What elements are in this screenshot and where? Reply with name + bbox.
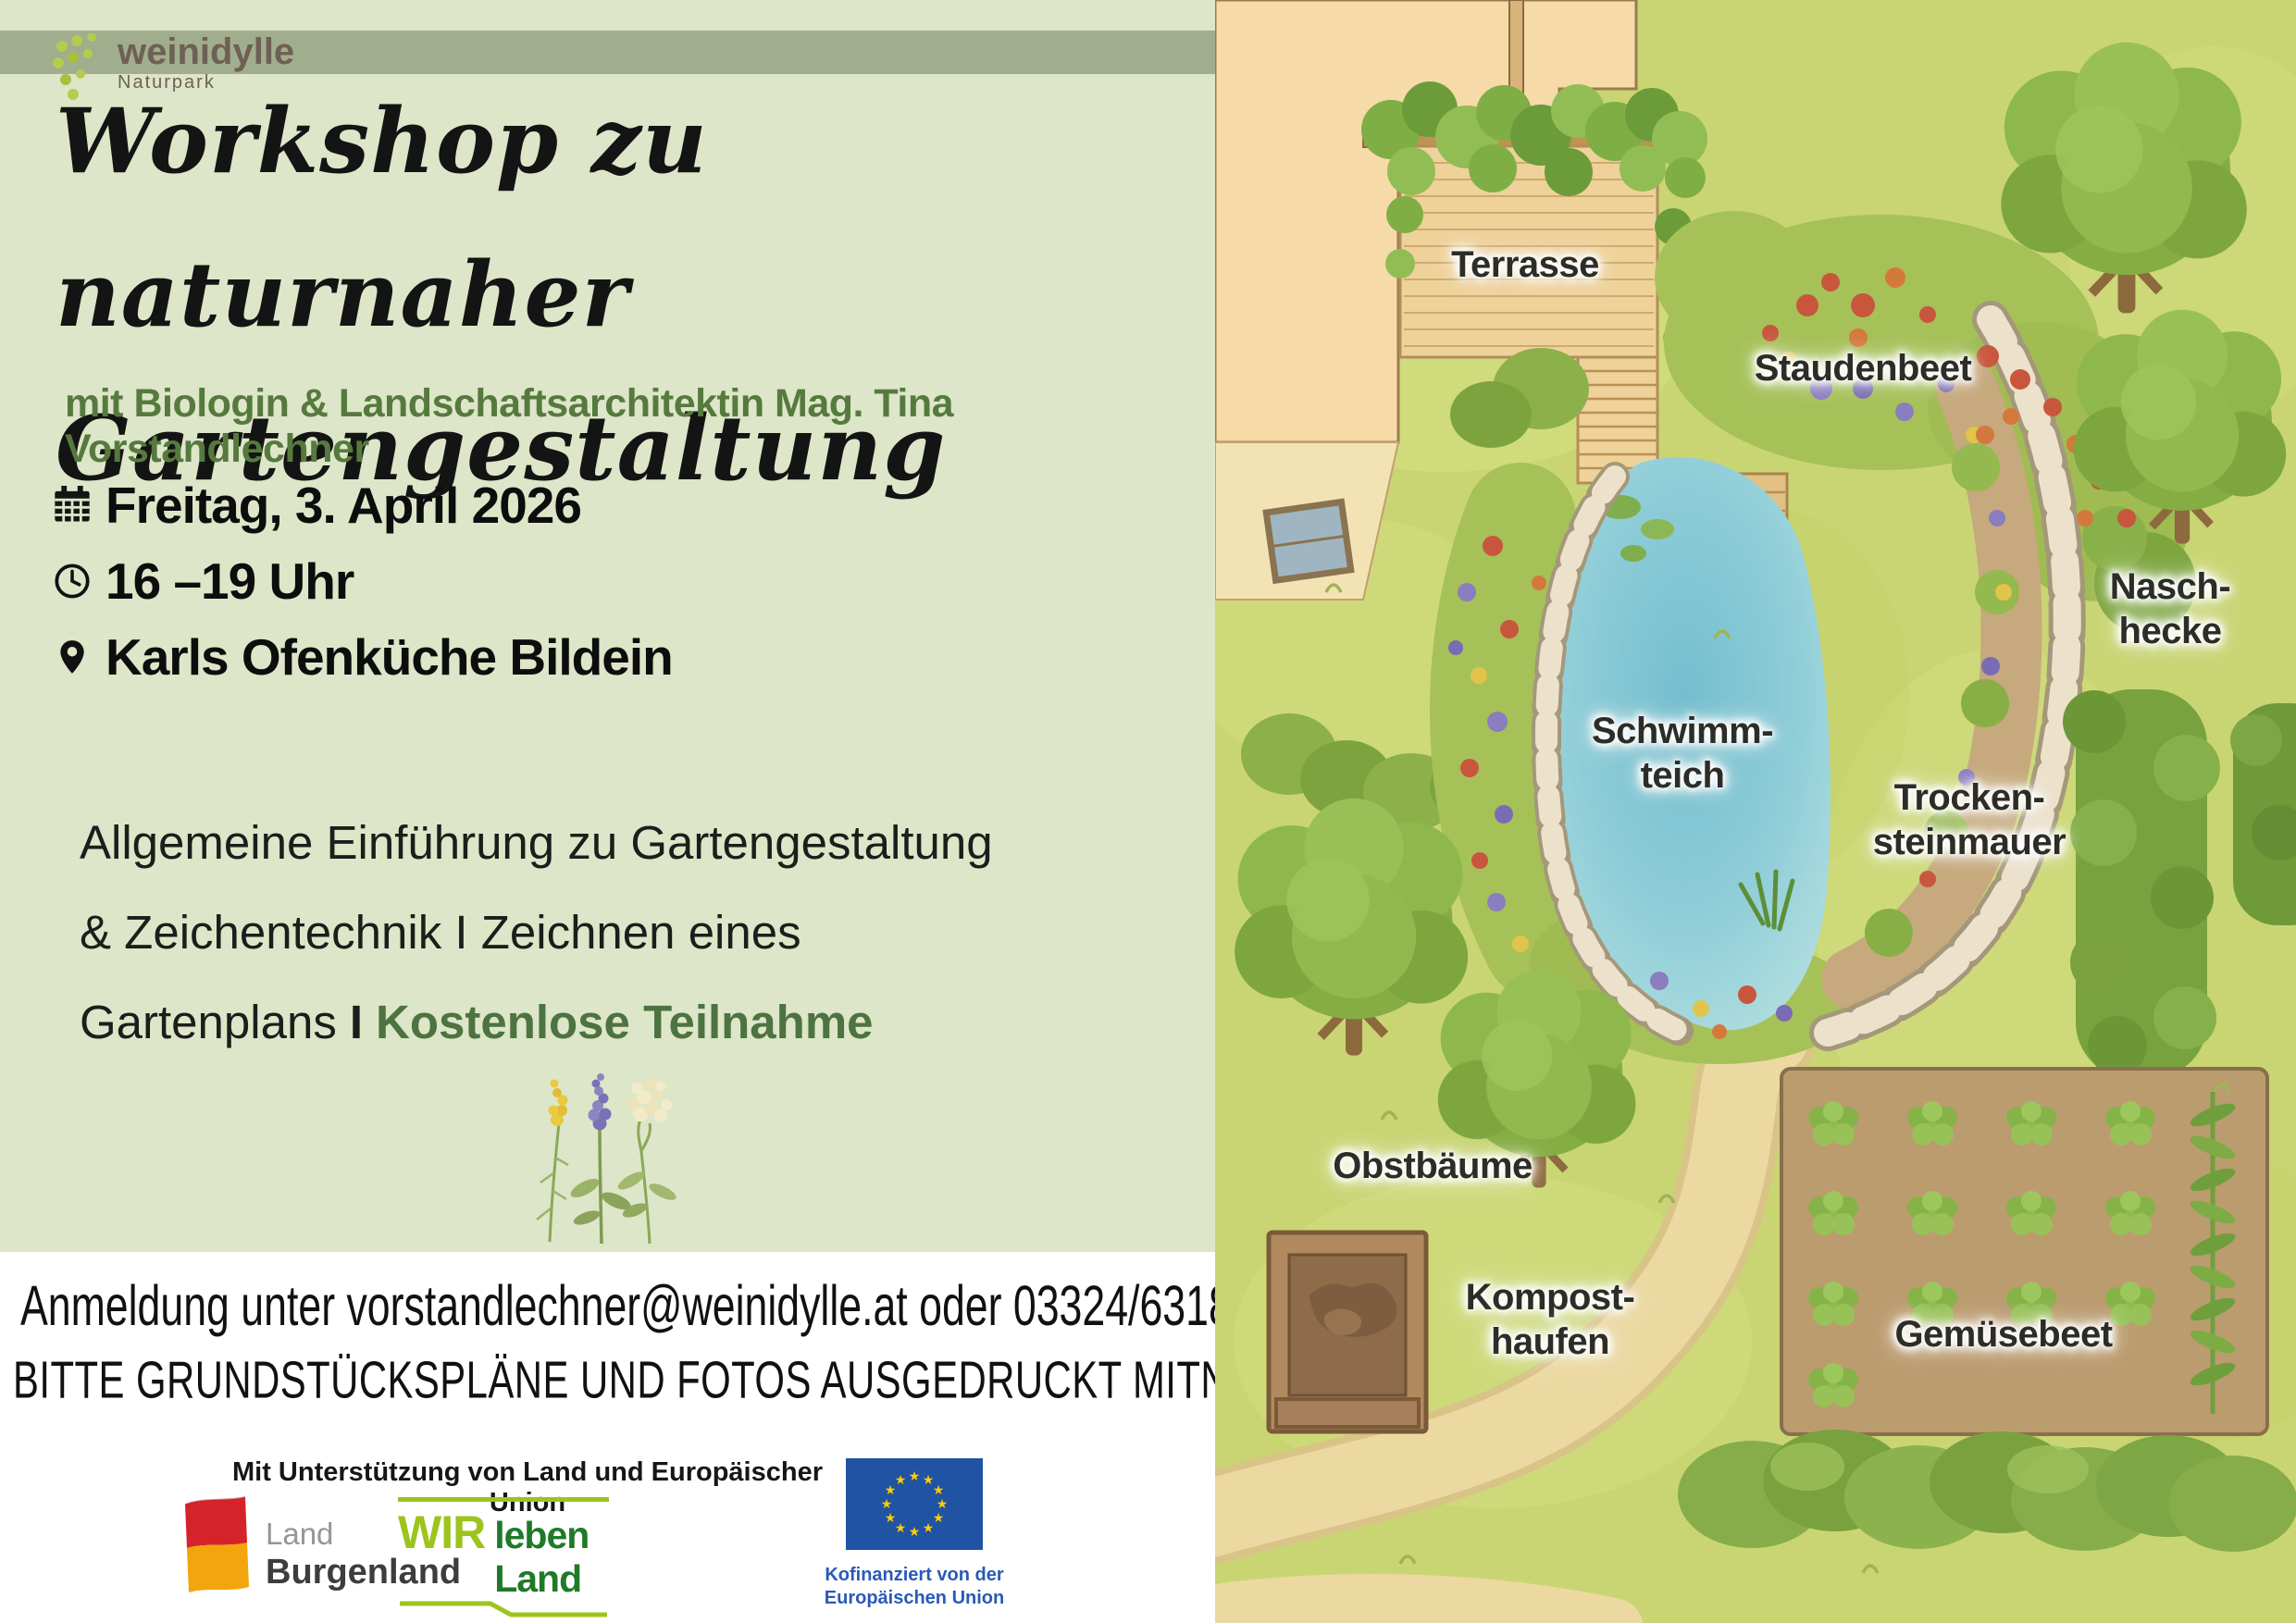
garden-illustration-canvas xyxy=(1215,0,2296,1623)
workshop-poster: weinidylle Naturpark Workshop zu naturna… xyxy=(0,0,2296,1623)
svg-text:★: ★ xyxy=(933,1483,945,1498)
wir-leben-land-logo: WIR leben Land Gemeinsame Agrarpolitik Ö… xyxy=(398,1497,620,1623)
svg-text:★: ★ xyxy=(895,1473,907,1488)
registration-line: Anmeldung unter vorstandlechner@weinidyl… xyxy=(20,1272,1232,1339)
wir-logo-rest-text: leben Land xyxy=(494,1514,620,1601)
footer-strip: Anmeldung unter vorstandlechner@weinidyl… xyxy=(0,1252,1215,1623)
description-line-3-prefix: Gartenplans xyxy=(80,996,337,1048)
svg-text:★: ★ xyxy=(909,1525,921,1540)
svg-text:★: ★ xyxy=(909,1469,921,1484)
label-staudenbeet: Staudenbeet xyxy=(1724,346,2002,390)
garden-plan-illustration: Terrasse Staudenbeet Nasch- hecke Schwim… xyxy=(1215,0,2296,1623)
label-terrasse: Terrasse xyxy=(1423,242,1627,287)
eu-logo-caption: Kofinanziert von der Europäischen Union xyxy=(822,1564,1007,1610)
wir-logo-top-line xyxy=(398,1497,609,1502)
svg-text:★: ★ xyxy=(885,1511,897,1526)
svg-text:★: ★ xyxy=(937,1497,949,1512)
detail-time: 16 –19 Uhr xyxy=(48,543,673,619)
label-komposthaufen: Kompost- haufen xyxy=(1439,1275,1661,1364)
detail-location: Karls Ofenküche Bildein xyxy=(48,619,673,695)
title-line-1: Workshop zu naturnaher xyxy=(56,65,1215,372)
separator-bar: I xyxy=(350,996,363,1048)
bring-plans-line: BITTE GRUNDSTÜCKSPLÄNE UND FOTOS AUSGEDR… xyxy=(13,1350,1383,1410)
description: Allgemeine Einführung zu Gartengestaltun… xyxy=(80,798,993,1067)
svg-text:★: ★ xyxy=(881,1497,893,1512)
subtitle: mit Biologin & Landschaftsarchitektin Ma… xyxy=(65,381,1212,472)
svg-text:★: ★ xyxy=(933,1511,945,1526)
description-line-3: GartenplansIKostenlose Teilnahme xyxy=(80,977,993,1067)
label-schwimmteich: Schwimm- teich xyxy=(1562,709,1803,798)
location-pin-icon xyxy=(48,638,96,675)
svg-text:★: ★ xyxy=(923,1521,935,1536)
label-obstbaeume: Obstbäume xyxy=(1312,1144,1553,1188)
clock-icon xyxy=(48,563,96,600)
label-trockensteinmauer: Trocken- steinmauer xyxy=(1821,775,2117,864)
free-participation-highlight: Kostenlose Teilnahme xyxy=(376,996,874,1048)
wir-logo-underline xyxy=(398,1601,609,1619)
detail-date-text: Freitag, 3. April 2026 xyxy=(105,476,581,535)
description-line-2: & Zeichentechnik I Zeichnen eines xyxy=(80,887,993,977)
wir-logo-big-text: WIR xyxy=(398,1505,485,1559)
left-panel: weinidylle Naturpark Workshop zu naturna… xyxy=(0,0,1215,1252)
detail-date: Freitag, 3. April 2026 xyxy=(48,467,673,543)
description-line-1: Allgemeine Einführung zu Gartengestaltun… xyxy=(80,798,993,887)
calendar-icon xyxy=(48,486,96,525)
event-details: Freitag, 3. April 2026 16 –19 Uhr xyxy=(48,467,673,695)
eu-logo: ★★★ ★★★ ★★★ ★★★ Kofinanziert von der Eur… xyxy=(822,1458,1007,1610)
eu-flag-icon: ★★★ ★★★ ★★★ ★★★ xyxy=(846,1458,983,1550)
label-naschhecke: Nasch- hecke xyxy=(2078,564,2263,653)
label-gemuesebeet: Gemüsebeet xyxy=(1874,1312,2133,1357)
detail-location-text: Karls Ofenküche Bildein xyxy=(105,627,673,687)
wildflowers-icon xyxy=(520,1070,683,1245)
detail-time-text: 16 –19 Uhr xyxy=(105,551,354,611)
svg-text:★: ★ xyxy=(895,1521,907,1536)
burgenland-flag-icon xyxy=(180,1494,251,1594)
